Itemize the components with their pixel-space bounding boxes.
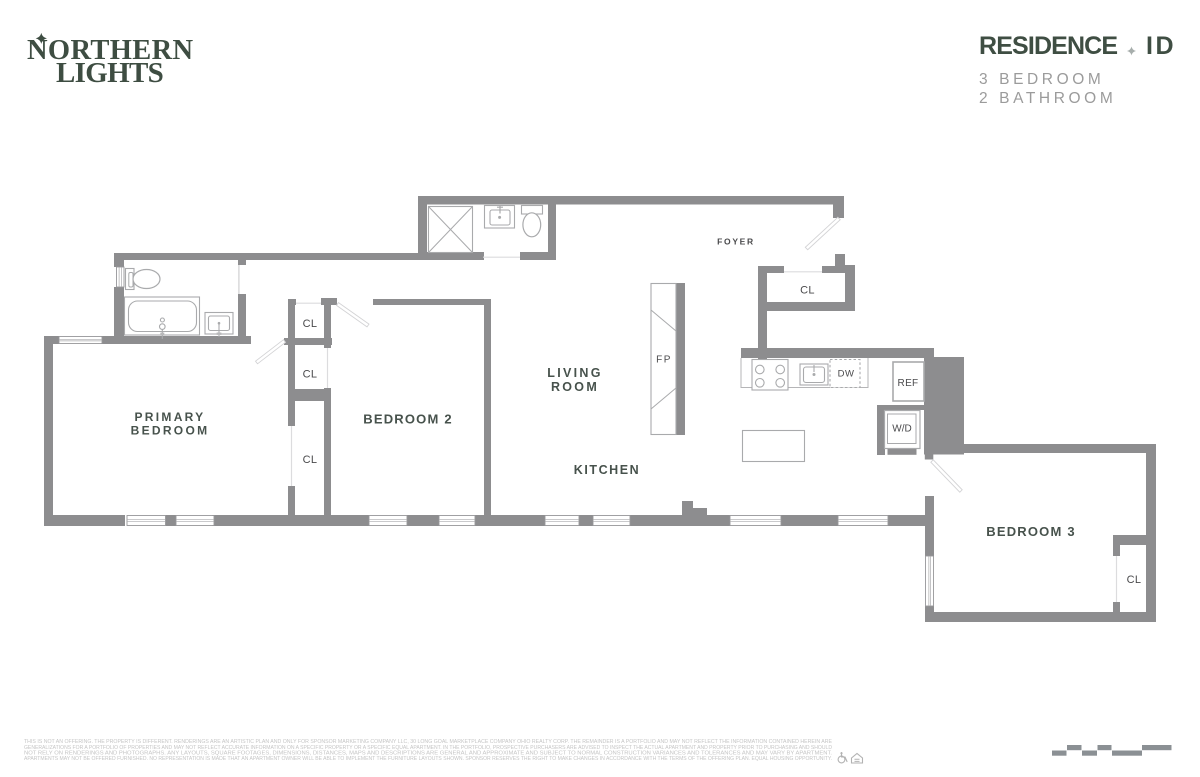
- svg-text:CL: CL: [1127, 574, 1142, 586]
- svg-text:LIGHTS: LIGHTS: [56, 57, 163, 89]
- svg-text:ROOM: ROOM: [551, 380, 599, 394]
- svg-text:KITCHEN: KITCHEN: [574, 463, 640, 477]
- svg-text:FP: FP: [656, 355, 672, 366]
- svg-text:CL: CL: [303, 318, 318, 330]
- svg-text:ID: ID: [1146, 32, 1176, 60]
- svg-text:CL: CL: [800, 285, 815, 297]
- svg-text:BEDROOM 2: BEDROOM 2: [363, 412, 453, 427]
- svg-text:DW: DW: [838, 369, 855, 380]
- svg-text:REF: REF: [898, 378, 919, 389]
- svg-text:3 BEDROOM: 3 BEDROOM: [979, 71, 1104, 88]
- svg-text:LIVING: LIVING: [547, 366, 602, 380]
- svg-text:W/D: W/D: [892, 424, 911, 435]
- svg-text:RESIDENCE: RESIDENCE: [979, 32, 1117, 60]
- svg-text:FOYER: FOYER: [717, 237, 755, 247]
- svg-text:CL: CL: [303, 369, 318, 381]
- svg-text:CL: CL: [303, 454, 318, 466]
- svg-text:PRIMARY: PRIMARY: [135, 410, 206, 424]
- svg-text:2 BATHROOM: 2 BATHROOM: [979, 90, 1116, 107]
- svg-text:BEDROOM 3: BEDROOM 3: [986, 524, 1076, 539]
- svg-text:BEDROOM: BEDROOM: [131, 424, 210, 438]
- svg-text:APARTMENTS MAY NOT BE OFFERED: APARTMENTS MAY NOT BE OFFERED FURNISHED.…: [24, 756, 832, 762]
